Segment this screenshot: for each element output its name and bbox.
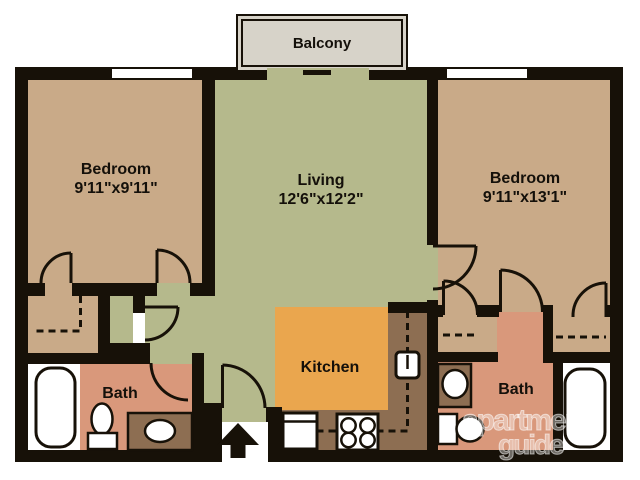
bedroom-right-dims: 9'11"x13'1" <box>450 188 600 207</box>
bedroom-left-name: Bedroom <box>41 160 191 179</box>
bedroom-right-label: Bedroom 9'11"x13'1" <box>450 169 600 207</box>
wall-kitchen-bathright <box>427 300 438 462</box>
hall-niche-floor <box>110 295 133 343</box>
wall-outer-left <box>15 67 28 462</box>
entry-alcove <box>222 422 268 462</box>
kitchen-label: Kitchen <box>280 358 380 377</box>
bath-left-floor <box>80 364 192 450</box>
wall-bedroomleft-living <box>202 79 215 295</box>
watermark-line2: guide <box>498 434 640 456</box>
balcony-railing <box>241 19 403 67</box>
door-opening-bedroomleft-living <box>157 283 190 296</box>
living-label: Living 12'6"x12'2" <box>246 171 396 209</box>
tub-nook-left-floor <box>27 364 80 450</box>
bath-right-label: Bath <box>481 380 551 399</box>
wall-niche-stub <box>133 295 145 313</box>
window-bedroom-right <box>447 69 527 78</box>
wall-outer-bottom-left <box>15 450 222 462</box>
door-opening-living-hall <box>427 245 438 300</box>
wall-living-bedroomright <box>427 79 438 245</box>
wall-closet-right-a-bottom <box>438 352 498 362</box>
door-opening-bedroomleft-closet <box>45 283 72 296</box>
wall-bedroomleft-bottom-c <box>190 283 215 296</box>
bedroom-left-label: Bedroom 9'11"x9'11" <box>41 160 191 198</box>
wall-bathleft-right <box>192 353 204 462</box>
kitchen-counter-bottom <box>281 410 388 450</box>
wall-outer-right <box>610 67 623 462</box>
wall-bedroomright-bottom-c <box>607 305 612 317</box>
living-dims: 12'6"x12'2" <box>246 190 396 209</box>
kitchen-counter-right <box>388 313 427 450</box>
apartment-guide-watermark: apartment guide <box>462 410 640 456</box>
bedroom-right-name: Bedroom <box>450 169 600 188</box>
closet-right-a-floor <box>438 317 497 352</box>
wall-kitchen-top-stub <box>388 302 428 313</box>
bath-left-label: Bath <box>75 384 165 403</box>
living-name: Living <box>246 171 396 190</box>
bath-right-entry-floor <box>497 312 543 362</box>
wall-entry-right-block <box>266 407 282 450</box>
bedroom-left-dims: 9'11"x9'11" <box>41 179 191 198</box>
wall-bathleft-top <box>27 353 150 364</box>
bedroom-left-closet-hall-floor <box>27 295 98 353</box>
floorplan-canvas: Balcony <box>0 0 640 480</box>
balcony-sliding-door-panel <box>303 70 331 75</box>
wall-bedroomleft-bottom-a <box>27 283 45 296</box>
wall-bedroomright-bottom-a <box>438 305 443 317</box>
closet-right-b-floor <box>553 317 611 352</box>
wall-entry-left-block <box>204 403 222 462</box>
balcony-area: Balcony <box>236 14 408 72</box>
wall-bedroomright-bottom-b <box>477 305 499 317</box>
window-bedroom-left <box>112 69 192 78</box>
